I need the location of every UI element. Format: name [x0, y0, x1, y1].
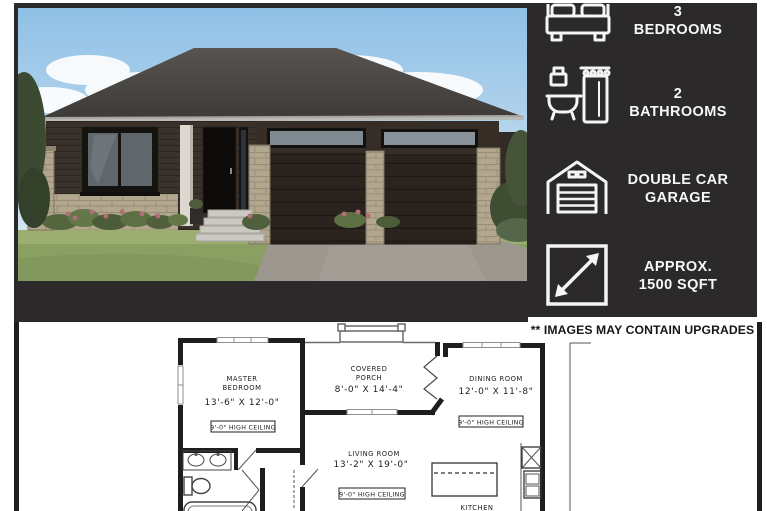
svg-text:9'-0" HIGH CEILING: 9'-0" HIGH CEILING — [339, 492, 405, 499]
spec-bathrooms-label: BATHROOMS — [598, 104, 758, 122]
svg-text:DINING ROOM: DINING ROOM — [469, 375, 523, 383]
svg-text:LIVING ROOM: LIVING ROOM — [348, 450, 400, 458]
spec-area: APPROX. 1500 SQFT — [598, 259, 758, 294]
spec-garage-value: DOUBLE CAR — [598, 172, 758, 190]
room-label-porch: COVERED PORCH 8'-0" X 14'-4" — [335, 365, 404, 395]
svg-text:13'-6" X 12'-0": 13'-6" X 12'-0" — [205, 398, 280, 408]
spec-bathrooms: 2 BATHROOMS — [598, 86, 758, 121]
spec-area-value: APPROX. — [598, 259, 758, 277]
room-label-living: LIVING ROOM 13'-2" X 19'-0" 9'-0" HIGH C… — [334, 450, 409, 499]
room-label-dining: DINING ROOM 12'-0" X 11'-8" 9'-0" HIGH C… — [458, 375, 533, 427]
spec-bathrooms-value: 2 — [598, 86, 758, 104]
spec-garage-label: GARAGE — [598, 190, 758, 208]
spec-bedrooms: 3 BEDROOMS — [598, 4, 758, 39]
svg-text:9'-0" HIGH CEILING: 9'-0" HIGH CEILING — [458, 420, 524, 427]
svg-text:MASTER: MASTER — [227, 375, 258, 383]
info-panel: 3 BEDROOMS 2 BATHROOMS DOUBLE CAR GARAGE — [14, 3, 757, 322]
room-label-kitchen: KITCHEN — [461, 504, 494, 511]
svg-text:12'-0" X 11'-8": 12'-0" X 11'-8" — [459, 387, 534, 397]
kitchen-fixtures — [432, 443, 541, 511]
dimension-line — [570, 343, 591, 511]
spec-bedrooms-value: 3 — [598, 4, 758, 22]
bathroom-fixtures — [183, 451, 256, 511]
svg-text:PORCH: PORCH — [356, 374, 382, 382]
svg-text:COVERED: COVERED — [351, 365, 388, 373]
french-door-symbol — [424, 356, 437, 399]
svg-text:8'-0" X 14'-4": 8'-0" X 14'-4" — [335, 385, 404, 395]
room-label-master: MASTER BEDROOM 13'-6" X 12'-0" 9'-0" HIG… — [205, 375, 280, 432]
floor-plan: MASTER BEDROOM 13'-6" X 12'-0" 9'-0" HIG… — [0, 322, 767, 511]
svg-text:13'-2" X 19'-0": 13'-2" X 19'-0" — [334, 460, 409, 470]
spec-area-label: 1500 SQFT — [598, 277, 758, 295]
spec-garage: DOUBLE CAR GARAGE — [598, 172, 758, 207]
svg-text:KITCHEN: KITCHEN — [461, 504, 494, 511]
porch-steps — [305, 324, 435, 343]
svg-text:9'-0" HIGH CEILING: 9'-0" HIGH CEILING — [210, 425, 276, 432]
house-photo-illustration — [18, 8, 527, 281]
house-photo — [18, 8, 527, 281]
svg-text:BEDROOM: BEDROOM — [223, 384, 262, 392]
spec-bedrooms-label: BEDROOMS — [598, 22, 758, 40]
